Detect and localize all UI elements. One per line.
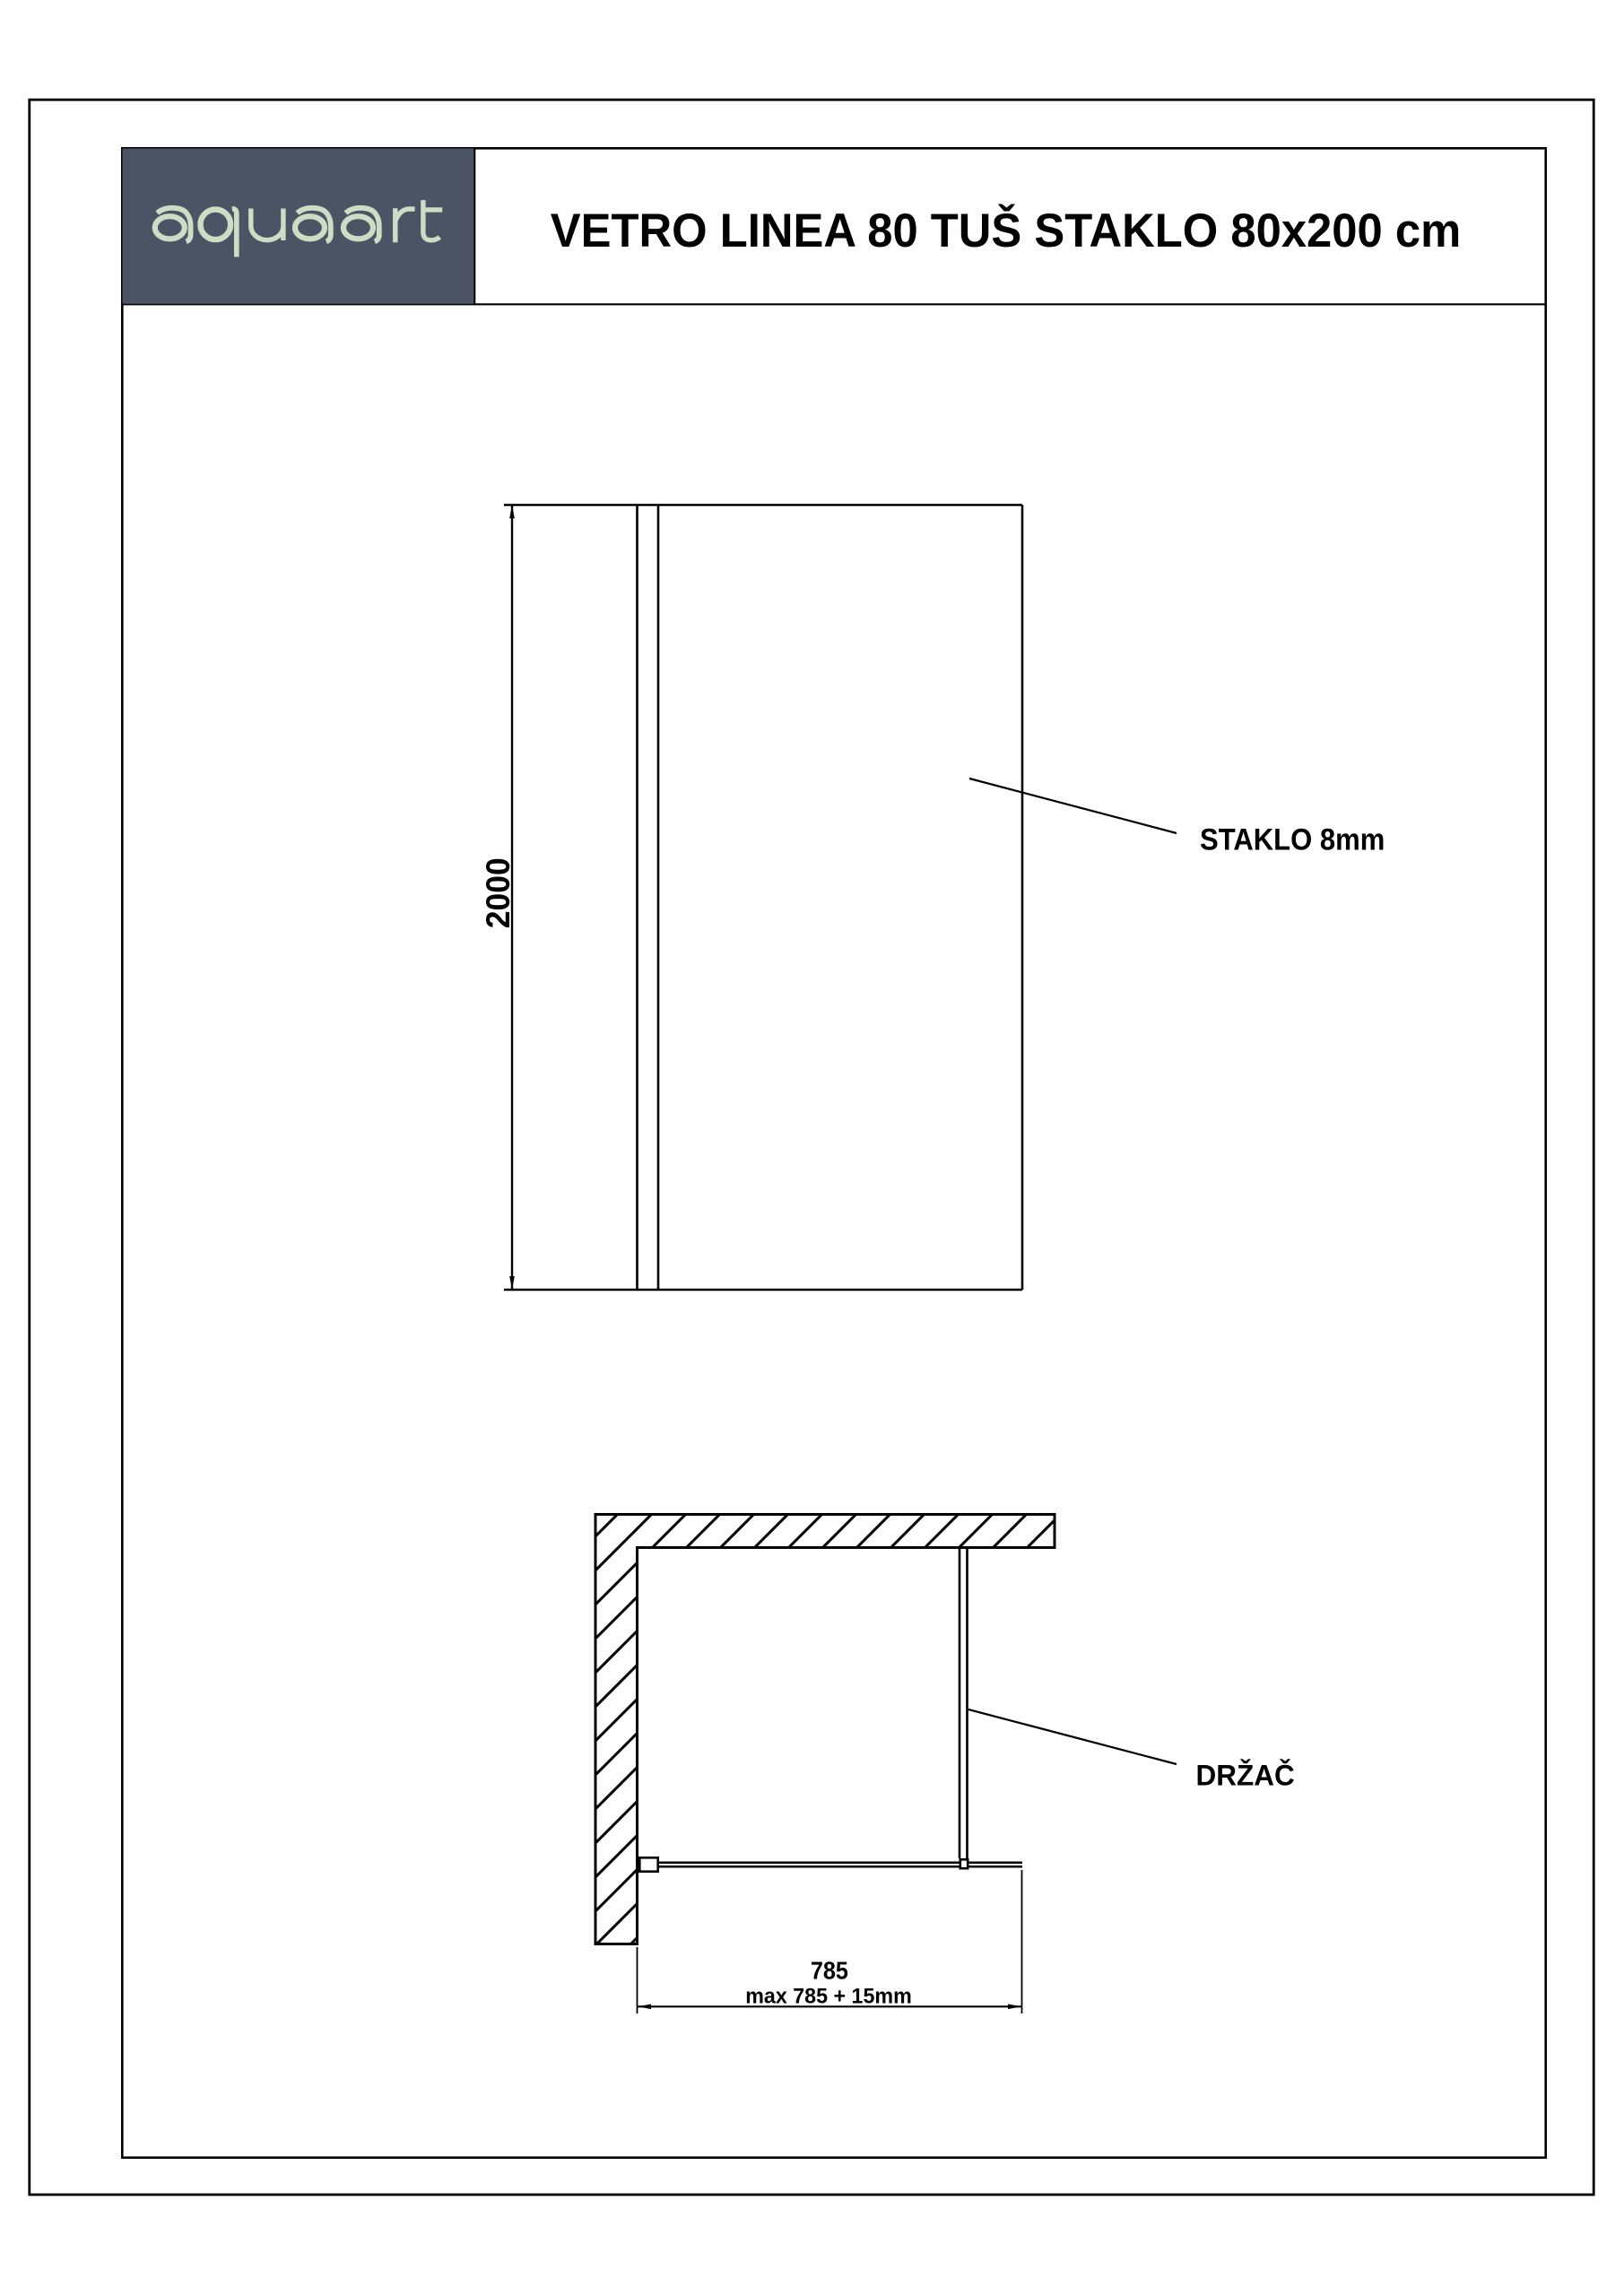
svg-text:785: 785 — [811, 1956, 848, 1984]
svg-text:DRŽAČ: DRŽAČ — [1196, 1759, 1295, 1792]
svg-text:max 785 + 15mm: max 785 + 15mm — [745, 1985, 912, 2008]
svg-text:2000: 2000 — [479, 857, 517, 928]
svg-text:STAKLO 8mm: STAKLO 8mm — [1200, 822, 1385, 857]
svg-text:VETRO LINEA 80 TUŠ STAKLO 80x2: VETRO LINEA 80 TUŠ STAKLO 80x200 cm — [551, 204, 1461, 257]
